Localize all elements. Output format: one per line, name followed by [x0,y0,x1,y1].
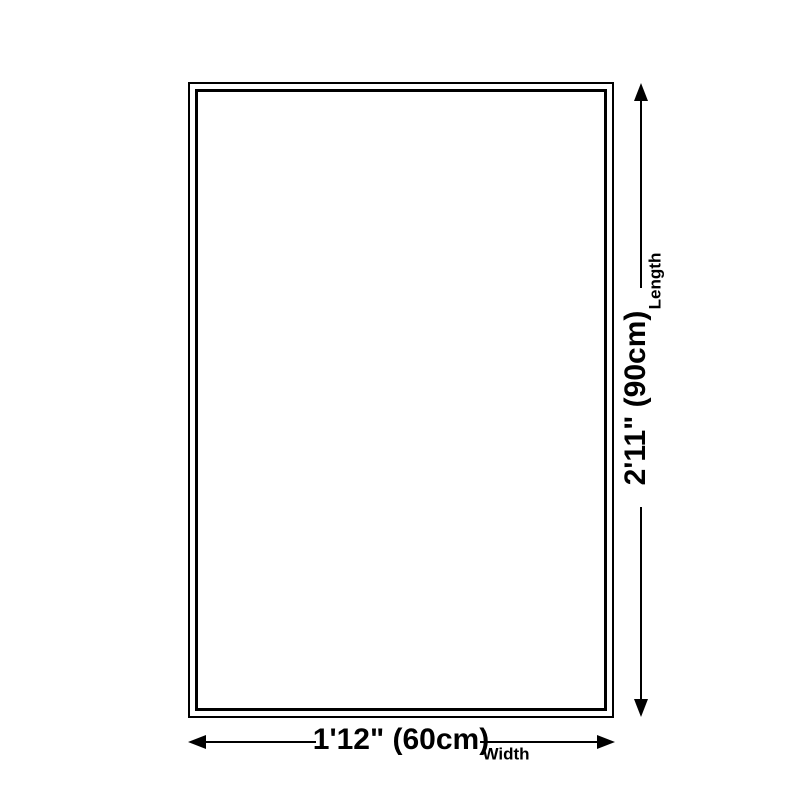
dimension-diagram: 2'11" (90cm) Length 1'12" (60cm) Width [0,0,800,800]
arrow-left-icon [188,735,206,749]
arrow-down-icon [634,699,648,717]
width-dimension-label: Width [482,746,529,763]
length-dimension-line-top [640,99,642,288]
length-dimension-value: 2'11" (90cm) [621,311,651,486]
rug-inner-border [195,89,607,711]
length-dimension-label: Length [647,253,664,310]
length-dimension-line-bottom [640,507,642,701]
arrow-up-icon [634,83,648,101]
width-dimension-line-left [203,741,316,743]
arrow-right-icon [597,735,615,749]
width-dimension-value: 1'12" (60cm) [313,725,489,755]
rug-outline [188,82,614,718]
width-dimension-line-right [480,741,599,743]
